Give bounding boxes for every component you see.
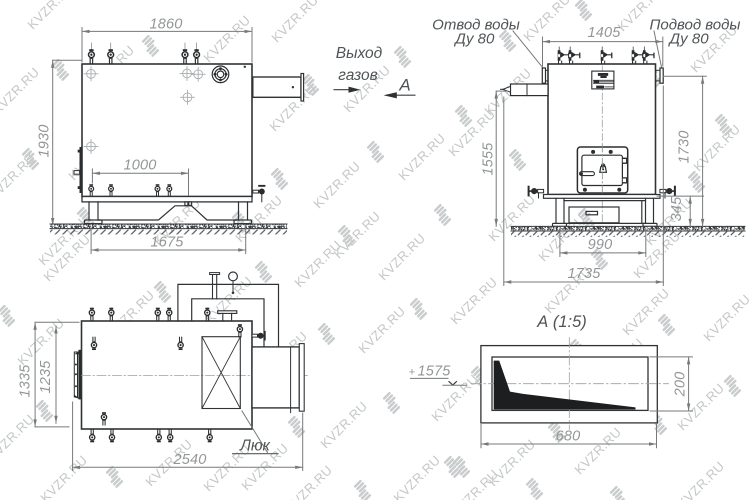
svg-text:1335: 1335	[18, 364, 34, 398]
svg-text:1000: 1000	[123, 158, 156, 174]
svg-text:1860: 1860	[149, 17, 182, 33]
svg-text:1930: 1930	[37, 124, 53, 157]
svg-text:1405: 1405	[587, 25, 621, 41]
svg-text:1735: 1735	[567, 266, 601, 282]
svg-text:А: А	[398, 76, 410, 95]
svg-text:А (1:5): А (1:5)	[536, 313, 587, 331]
svg-text:1730: 1730	[677, 130, 693, 163]
svg-text:680: 680	[556, 429, 581, 445]
svg-text:990: 990	[588, 237, 613, 253]
svg-text:1555: 1555	[481, 142, 497, 176]
svg-text:1235: 1235	[38, 360, 54, 394]
svg-text:+: +	[409, 367, 415, 379]
svg-text:2540: 2540	[172, 452, 206, 468]
svg-text:1575: 1575	[417, 364, 451, 380]
svg-text:Ду 80: Ду 80	[667, 31, 709, 48]
svg-text:Ду 80: Ду 80	[453, 31, 495, 48]
svg-text:Люк: Люк	[239, 438, 270, 455]
svg-text:1675: 1675	[150, 235, 184, 251]
svg-text:345: 345	[669, 196, 685, 222]
svg-text:200: 200	[673, 372, 689, 398]
svg-text:Выход: Выход	[336, 45, 383, 62]
svg-text:газов: газов	[338, 67, 378, 84]
